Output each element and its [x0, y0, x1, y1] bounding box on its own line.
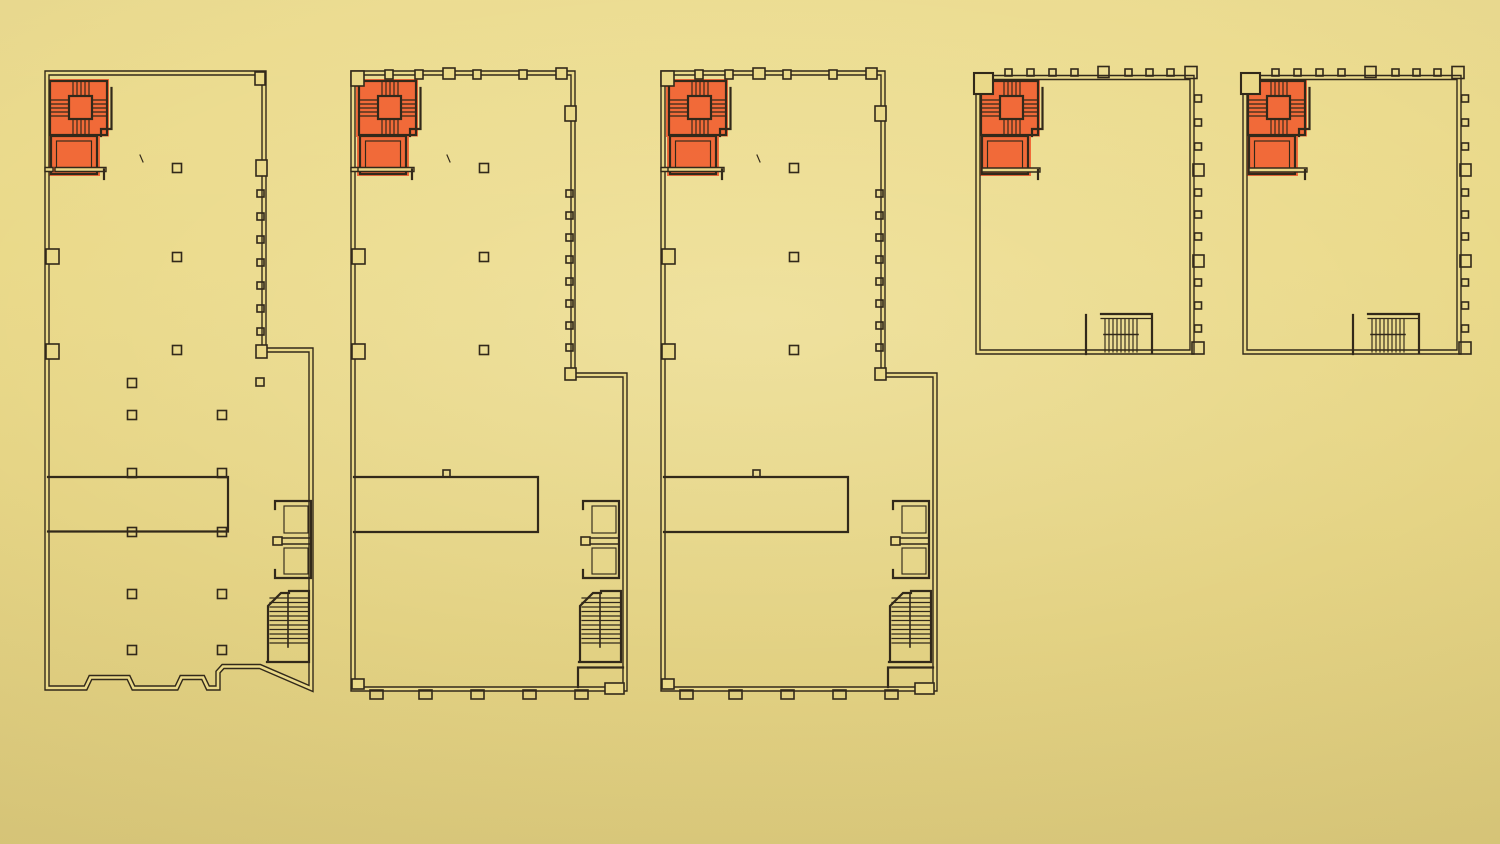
- hand-mark: [140, 155, 143, 162]
- column-line: [443, 164, 489, 478]
- wall-notch: [46, 249, 59, 264]
- floor-band: [354, 477, 538, 532]
- wall-pier: [565, 106, 576, 121]
- service-shafts: [273, 501, 311, 578]
- wall-notch: [352, 679, 364, 689]
- straight-stair: [1086, 314, 1152, 354]
- wall-pier: [565, 368, 576, 380]
- corner-pier: [605, 683, 624, 694]
- corner-pier: [974, 73, 993, 94]
- switchback-stair: [579, 591, 621, 662]
- stair-core: [47, 79, 112, 176]
- floor-plan-5: [1241, 67, 1471, 355]
- wall-notch: [352, 344, 365, 359]
- wall-pier: [256, 160, 267, 176]
- plans-sheet: [0, 0, 1500, 844]
- floor-plan-3: [661, 68, 935, 699]
- floor-plan-1: [46, 72, 311, 689]
- service-shafts: [581, 501, 619, 578]
- wall-notch: [352, 249, 365, 264]
- stair-core: [356, 79, 421, 176]
- wall-pier: [255, 72, 265, 85]
- switchback-stair: [267, 591, 309, 662]
- hand-mark: [447, 155, 450, 162]
- wall-pier: [256, 345, 267, 358]
- wall-notch: [46, 344, 59, 359]
- floor-plan-2: [351, 68, 625, 699]
- floor-plan-4: [974, 67, 1204, 355]
- column-grid: [128, 164, 227, 655]
- floor-band: [48, 477, 228, 532]
